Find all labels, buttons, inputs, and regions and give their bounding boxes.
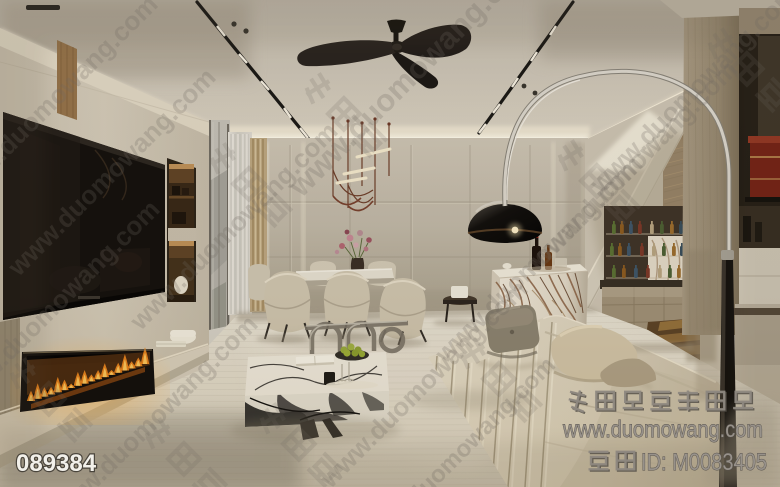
svg-text:www.duomowang.com: www.duomowang.com	[562, 416, 763, 442]
svg-text:089384: 089384	[16, 450, 97, 477]
svg-text:ID: M0083405: ID: M0083405	[641, 449, 767, 476]
